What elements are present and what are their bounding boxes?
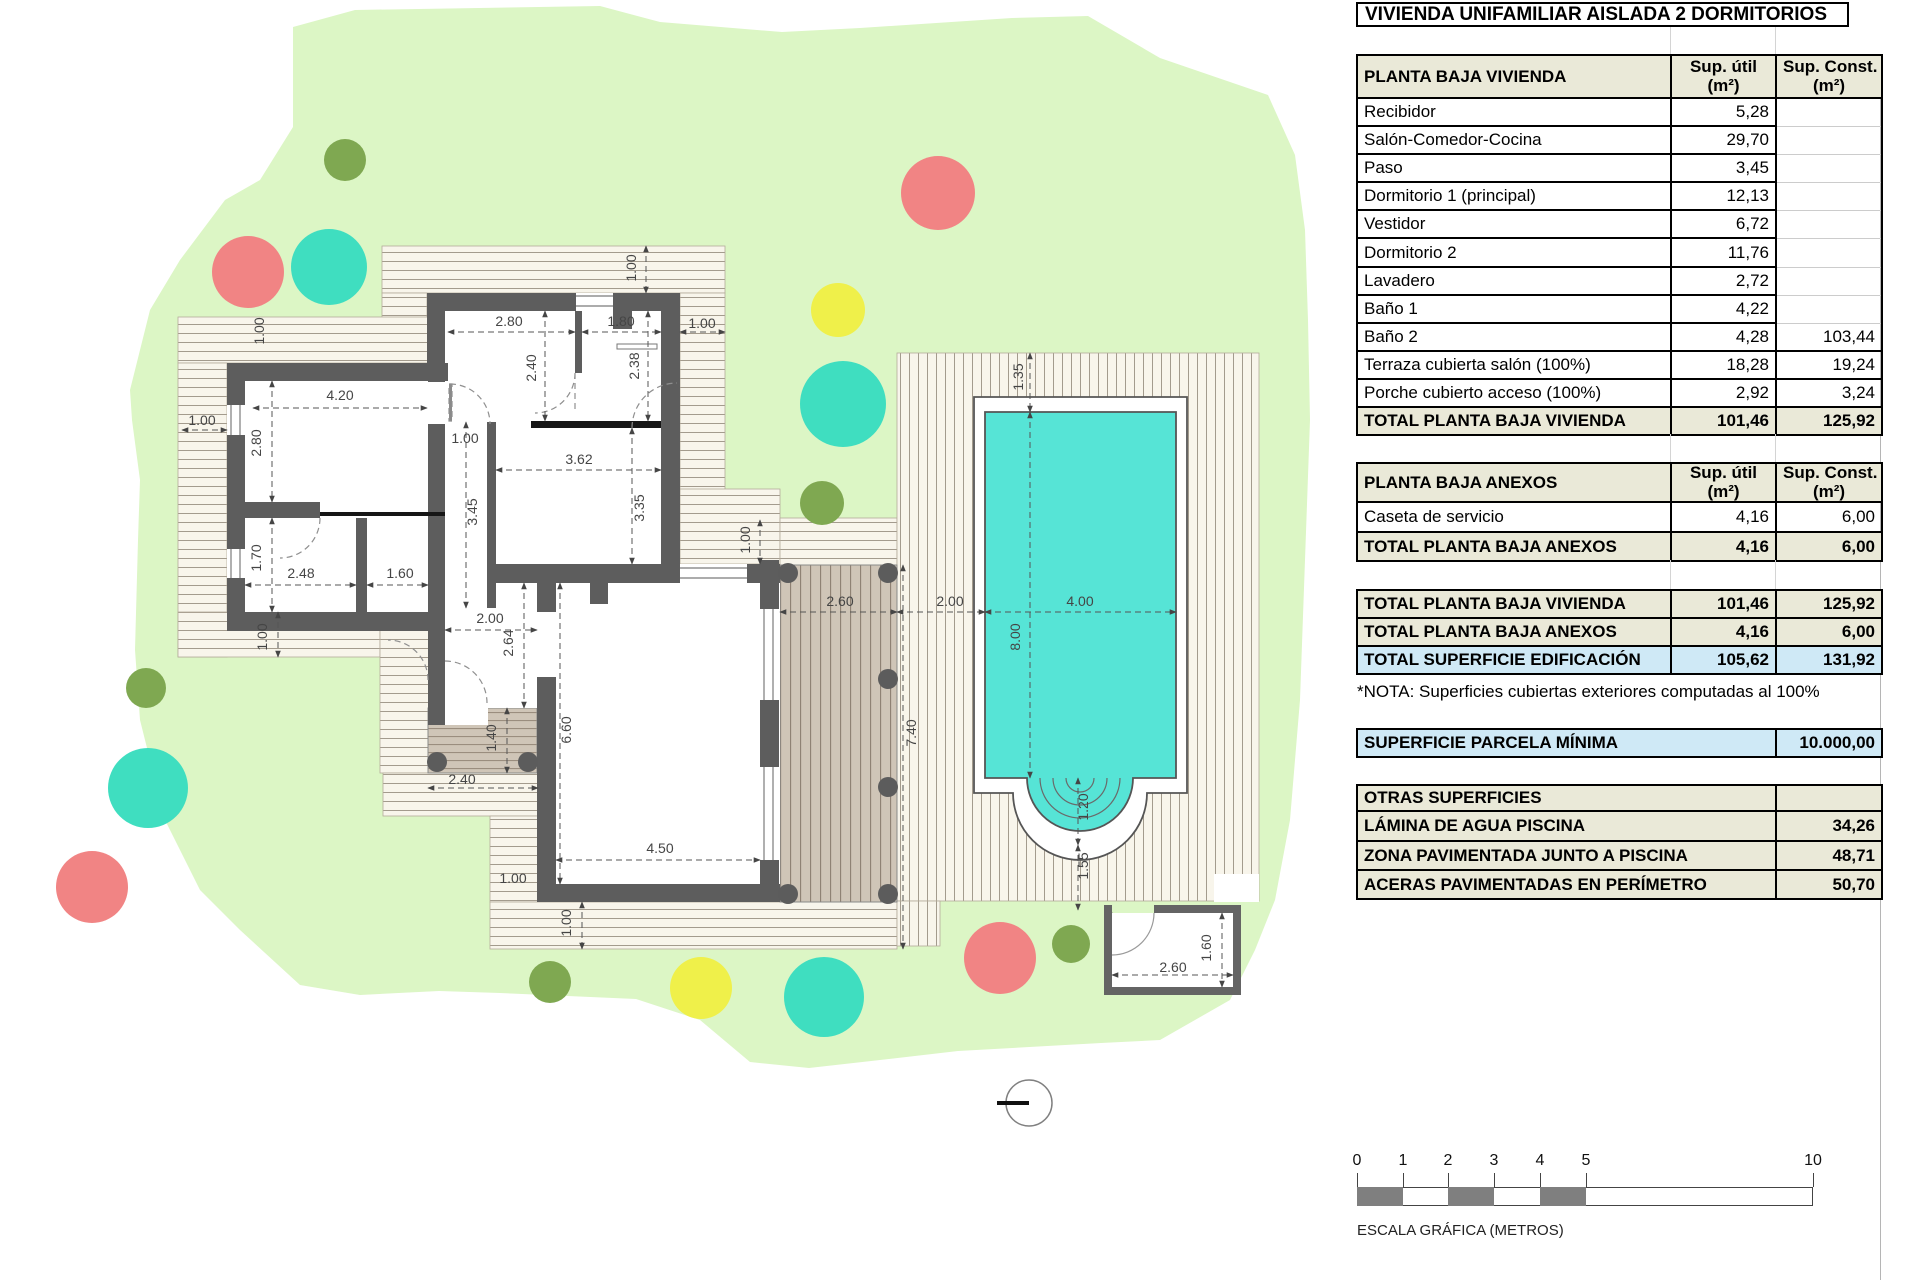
svg-text:1.60: 1.60 (1198, 934, 1214, 961)
svg-text:1.20: 1.20 (1075, 793, 1091, 820)
svg-text:3.45: 3.45 (464, 498, 480, 525)
svg-text:1.55: 1.55 (1075, 852, 1091, 879)
svg-text:4.00: 4.00 (1066, 593, 1093, 609)
svg-text:4.50: 4.50 (646, 840, 673, 856)
svg-text:1.00: 1.00 (558, 909, 574, 936)
svg-text:1.60: 1.60 (386, 565, 413, 581)
svg-text:3.62: 3.62 (565, 451, 592, 467)
svg-text:2.60: 2.60 (826, 593, 853, 609)
svg-text:2.40: 2.40 (448, 771, 475, 787)
svg-text:2.38: 2.38 (626, 352, 642, 379)
svg-text:2.00: 2.00 (936, 593, 963, 609)
svg-text:1.00: 1.00 (499, 870, 526, 886)
svg-text:1.35: 1.35 (1010, 363, 1026, 390)
svg-text:2.64: 2.64 (500, 629, 516, 656)
svg-text:1.70: 1.70 (248, 544, 264, 571)
svg-text:1.00: 1.00 (188, 412, 215, 428)
svg-text:2.80: 2.80 (495, 313, 522, 329)
svg-text:2.48: 2.48 (287, 565, 314, 581)
svg-text:1.00: 1.00 (737, 526, 753, 553)
svg-text:2.60: 2.60 (1159, 959, 1186, 975)
svg-text:2.00: 2.00 (476, 610, 503, 626)
svg-text:1.00: 1.00 (451, 430, 478, 446)
svg-text:3.35: 3.35 (631, 494, 647, 521)
svg-text:2.80: 2.80 (248, 429, 264, 456)
svg-text:1.00: 1.00 (623, 254, 639, 281)
svg-text:1.00: 1.00 (688, 315, 715, 331)
svg-text:6.60: 6.60 (558, 716, 574, 743)
svg-text:7.40: 7.40 (903, 719, 919, 746)
svg-text:2.40: 2.40 (523, 354, 539, 381)
svg-text:1.00: 1.00 (254, 623, 270, 650)
svg-text:1.40: 1.40 (483, 724, 499, 751)
svg-text:1.00: 1.00 (251, 317, 267, 344)
svg-text:8.00: 8.00 (1007, 623, 1023, 650)
svg-text:1.80: 1.80 (607, 313, 634, 329)
svg-text:4.20: 4.20 (326, 387, 353, 403)
